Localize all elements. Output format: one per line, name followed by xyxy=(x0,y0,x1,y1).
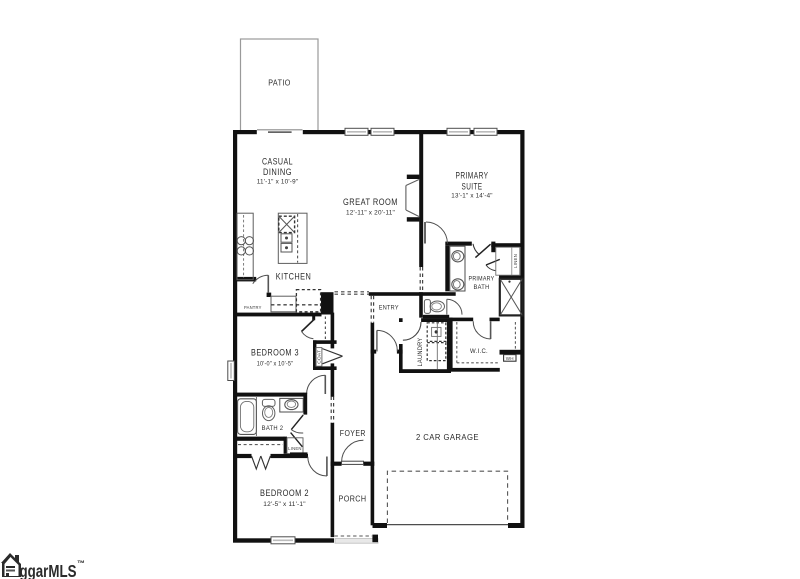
svg-text:GREAT ROOM: GREAT ROOM xyxy=(343,197,398,208)
svg-text:ENTRY: ENTRY xyxy=(379,305,399,312)
svg-text:ggarMLS: ggarMLS xyxy=(20,561,77,579)
svg-text:LAUNDRY: LAUNDRY xyxy=(417,337,424,366)
svg-text:PATIO: PATIO xyxy=(268,78,291,88)
svg-text:FOYER: FOYER xyxy=(340,428,366,438)
svg-text:COAT: COAT xyxy=(316,350,321,364)
svg-text:WH: WH xyxy=(506,356,514,361)
svg-text:KITCHEN: KITCHEN xyxy=(276,272,312,283)
svg-text:DINING: DINING xyxy=(263,167,292,178)
svg-text:PRIMARY: PRIMARY xyxy=(469,275,495,282)
svg-text:10'-0" x 10'-5": 10'-0" x 10'-5" xyxy=(257,361,294,368)
svg-text:PORCH: PORCH xyxy=(339,494,367,504)
svg-text:12'-5" x 11'-1": 12'-5" x 11'-1" xyxy=(263,501,306,508)
svg-text:CASUAL: CASUAL xyxy=(262,157,293,168)
svg-text:11'-1" x 10'-9": 11'-1" x 10'-9" xyxy=(257,179,299,186)
svg-text:LINEN: LINEN xyxy=(513,254,518,268)
svg-text:BATH 2: BATH 2 xyxy=(262,425,284,432)
svg-text:12'-11" x 20'-11": 12'-11" x 20'-11" xyxy=(346,210,395,217)
svg-text:BATH: BATH xyxy=(474,284,490,291)
svg-text:BEDROOM 3: BEDROOM 3 xyxy=(251,348,299,359)
svg-text:SUITE: SUITE xyxy=(462,182,483,193)
svg-text:BEDROOM 2: BEDROOM 2 xyxy=(260,488,309,499)
svg-text:2 CAR GARAGE: 2 CAR GARAGE xyxy=(416,432,479,442)
svg-text:PANTRY: PANTRY xyxy=(244,305,262,310)
svg-text:W.I.C.: W.I.C. xyxy=(470,348,488,355)
svg-text:PRIMARY: PRIMARY xyxy=(456,171,489,182)
svg-text:LINEN: LINEN xyxy=(288,446,302,451)
svg-text:13'-1" x 14'-4": 13'-1" x 14'-4" xyxy=(451,193,492,200)
svg-text:™: ™ xyxy=(77,559,85,568)
